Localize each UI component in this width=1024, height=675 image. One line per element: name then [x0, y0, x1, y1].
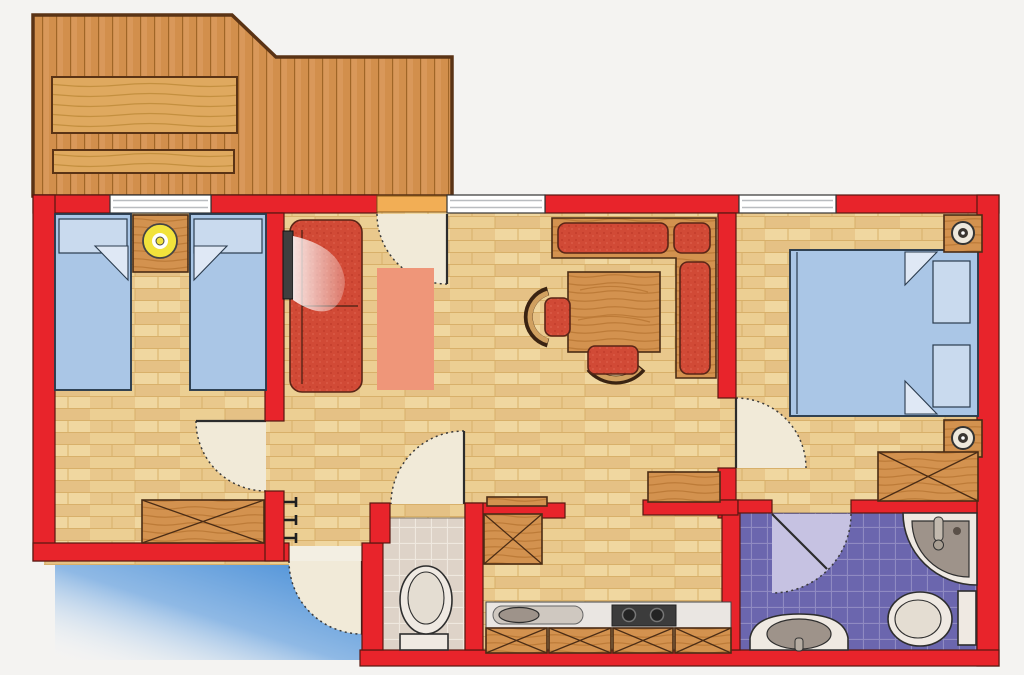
sideboard: [648, 472, 720, 502]
balcony-bench: [53, 150, 234, 173]
single-bed-left: [55, 214, 131, 390]
floor-plan-drawing: [0, 0, 1024, 675]
floor-plan: [0, 0, 1024, 675]
bathroom-toilet: [888, 591, 976, 646]
double-bed: [790, 250, 978, 416]
nightstand: [133, 215, 188, 272]
single-bed-right: [190, 214, 266, 390]
wall-shelf: [487, 497, 547, 506]
rug: [377, 268, 434, 390]
kitchen-sink: [493, 606, 583, 624]
bottom-left-wall: [33, 543, 289, 561]
base-cabinets: [486, 628, 731, 653]
balcony-table: [52, 77, 237, 133]
twin-bedroom-partition: [265, 213, 284, 421]
nightstand-top: [944, 215, 982, 252]
chest-of-drawers: [142, 500, 264, 543]
dining-table: [568, 272, 660, 352]
living-room-window: [447, 195, 545, 213]
double-bedroom-partition: [718, 213, 736, 398]
washbasin: [750, 614, 848, 651]
wardrobe: [878, 452, 978, 501]
cooktop: [612, 605, 676, 626]
left-outer-wall: [33, 195, 55, 561]
tall-cabinet: [484, 514, 542, 564]
balcony-door-threshold: [377, 196, 447, 212]
wc-toilet: [400, 566, 452, 650]
twin-bedroom-window: [110, 195, 211, 213]
double-bedroom-window: [739, 195, 836, 213]
wc: [400, 566, 452, 650]
